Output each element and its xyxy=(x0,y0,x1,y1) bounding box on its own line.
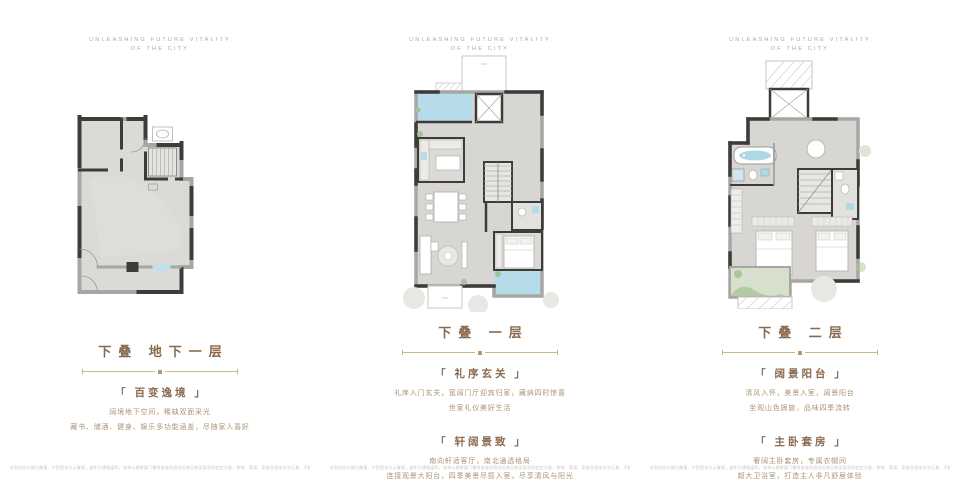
floorplan-basement xyxy=(69,108,252,320)
en-header-line1: UNLEASHING FUTURE VITALITY xyxy=(320,36,640,45)
disclaimer-text: 本资料仅为要约邀请，户型图仅为示意图，面积为建筑面积，具体以政府部门最终批准的图… xyxy=(10,465,311,471)
divider-ornament xyxy=(390,350,570,355)
section-desc-line: 超大卫浴室，打造主人非凡舒居体验 xyxy=(640,471,960,483)
disclaimer-text: 本资料仅为要约邀请，户型图仅为示意图，面积为建筑面积，具体以政府部门最终批准的图… xyxy=(650,465,951,471)
second-floor-text-block: 下叠 二层 「 阔景阳台 」 清风入怀，美景入室，阔景阳台 坐观山色旖旎，品味四… xyxy=(640,322,960,483)
disclaimer-text: 本资料仅为要约邀请，户型图仅为示意图，面积为建筑面积，具体以政府部门最终批准的图… xyxy=(330,465,631,471)
plan-title-first-floor: 下叠 一层 xyxy=(320,322,640,341)
floorplan-basement-svg xyxy=(69,108,252,320)
section-desc-line: 礼序入门玄关，宽阔门厅迎宾归家，藏纳四时惊喜 xyxy=(320,388,640,400)
section-desc-line: 连接观景大阳台，四季美景尽揽入室，尽享清风与阳光 xyxy=(320,471,640,483)
floorplan-first-floor-svg xyxy=(398,50,562,312)
en-header: UNLEASHING FUTURE VITALITY OF THE CITY xyxy=(0,36,320,54)
section-heading: 「 百变逸境 」 xyxy=(0,385,320,400)
first-floor-text-block: 下叠 一层 「 礼序玄关 」 礼序入门玄关，宽阔门厅迎宾归家，藏纳四时惊喜 世家… xyxy=(320,322,640,483)
section-desc-line: 阔境地下空间，稀缺双面采光 xyxy=(0,407,320,419)
en-header: UNLEASHING FUTURE VITALITY OF THE CITY xyxy=(640,36,960,54)
plan-title-basement: 下叠 地下一层 xyxy=(0,341,320,360)
floorplan-first-floor xyxy=(398,50,562,312)
plan-title-second-floor: 下叠 二层 xyxy=(640,322,960,341)
section-heading: 「 礼序玄关 」 xyxy=(320,366,640,381)
divider-ornament xyxy=(70,369,250,374)
panel-basement: UNLEASHING FUTURE VITALITY OF THE CITY xyxy=(0,0,320,485)
section-heading: 「 轩阔景致 」 xyxy=(320,434,640,449)
section-heading: 「 阔景阳台 」 xyxy=(640,366,960,381)
brochure-page: UNLEASHING FUTURE VITALITY OF THE CITY xyxy=(0,0,960,485)
section-desc-line: 藏书、储酒、健身、娱乐多功能涵盖，尽随家人喜好 xyxy=(0,422,320,434)
section-desc-line: 清风入怀，美景入室，阔景阳台 xyxy=(640,388,960,400)
en-header-line2: OF THE CITY xyxy=(640,45,960,54)
en-header-line2: OF THE CITY xyxy=(0,45,320,54)
panel-first-floor: UNLEASHING FUTURE VITALITY OF THE CITY xyxy=(320,0,640,485)
basement-text-block: 下叠 地下一层 「 百变逸境 」 阔境地下空间，稀缺双面采光 藏书、储酒、健身、… xyxy=(0,341,320,434)
section-desc-line: 坐观山色旖旎，品味四季流转 xyxy=(640,403,960,415)
en-header-line1: UNLEASHING FUTURE VITALITY xyxy=(0,36,320,45)
en-header-line1: UNLEASHING FUTURE VITALITY xyxy=(640,36,960,45)
floorplan-second-floor xyxy=(718,57,882,309)
floorplan-second-floor-svg xyxy=(718,57,882,309)
divider-ornament xyxy=(710,350,890,355)
section-heading: 「 主卧套房 」 xyxy=(640,434,960,449)
section-desc-line: 世家礼仪美好生活 xyxy=(320,403,640,415)
panel-second-floor: UNLEASHING FUTURE VITALITY OF THE CITY xyxy=(640,0,960,485)
